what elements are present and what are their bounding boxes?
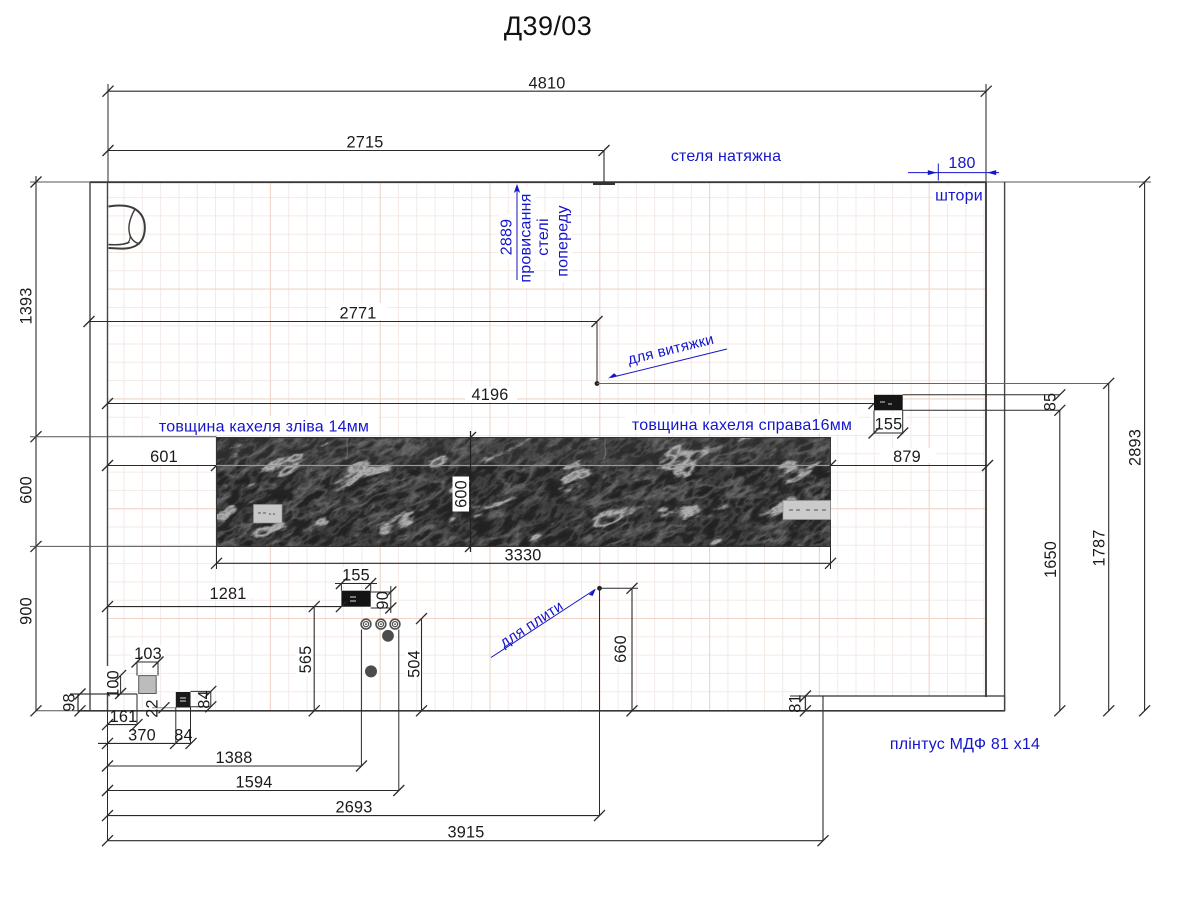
svg-text:3915: 3915 — [447, 824, 484, 842]
svg-text:85: 85 — [1042, 393, 1060, 412]
svg-text:100: 100 — [105, 670, 123, 698]
svg-text:180: 180 — [948, 155, 975, 172]
svg-text:плінтус МДФ 81 х14: плінтус МДФ 81 х14 — [890, 736, 1040, 753]
svg-text:90: 90 — [374, 591, 392, 610]
svg-text:4810: 4810 — [528, 75, 565, 93]
svg-text:155: 155 — [875, 416, 903, 434]
svg-text:600: 600 — [453, 480, 471, 508]
svg-text:1393: 1393 — [18, 287, 36, 324]
svg-text:98: 98 — [61, 693, 79, 712]
svg-text:1388: 1388 — [215, 749, 252, 767]
svg-text:1281: 1281 — [209, 585, 246, 603]
svg-text:81: 81 — [787, 694, 805, 713]
svg-text:84: 84 — [174, 727, 193, 745]
svg-text:2893: 2893 — [1127, 429, 1145, 466]
svg-text:601: 601 — [150, 448, 178, 466]
svg-text:стеля натяжна: стеля натяжна — [671, 148, 781, 165]
svg-text:штори: штори — [935, 188, 983, 205]
svg-text:84: 84 — [196, 690, 214, 709]
svg-text:1594: 1594 — [235, 774, 272, 792]
svg-text:22: 22 — [144, 699, 162, 718]
svg-text:4196: 4196 — [471, 386, 508, 404]
svg-text:2771: 2771 — [339, 305, 376, 323]
svg-text:161: 161 — [110, 708, 138, 726]
svg-text:600: 600 — [18, 476, 36, 504]
svg-text:1787: 1787 — [1091, 529, 1109, 566]
svg-text:370: 370 — [128, 727, 156, 745]
svg-text:попереду: попереду — [555, 205, 572, 277]
svg-text:879: 879 — [893, 448, 921, 466]
svg-text:стелі: стелі — [535, 218, 552, 255]
svg-text:565: 565 — [297, 646, 315, 674]
svg-text:504: 504 — [406, 650, 424, 678]
svg-text:660: 660 — [612, 635, 630, 663]
svg-text:2715: 2715 — [346, 134, 383, 152]
svg-text:103: 103 — [134, 645, 162, 663]
svg-text:3330: 3330 — [504, 547, 541, 565]
svg-text:товщина кахеля зліва 14мм: товщина кахеля зліва 14мм — [159, 419, 369, 436]
svg-text:2889: 2889 — [499, 219, 516, 255]
svg-text:Д39/03: Д39/03 — [504, 11, 592, 41]
svg-text:900: 900 — [18, 597, 36, 625]
svg-text:2693: 2693 — [335, 799, 372, 817]
svg-text:155: 155 — [342, 567, 370, 585]
svg-text:товщина кахеля справа16мм: товщина кахеля справа16мм — [632, 417, 852, 434]
svg-text:провисання: провисання — [518, 193, 535, 282]
svg-text:1650: 1650 — [1042, 541, 1060, 578]
